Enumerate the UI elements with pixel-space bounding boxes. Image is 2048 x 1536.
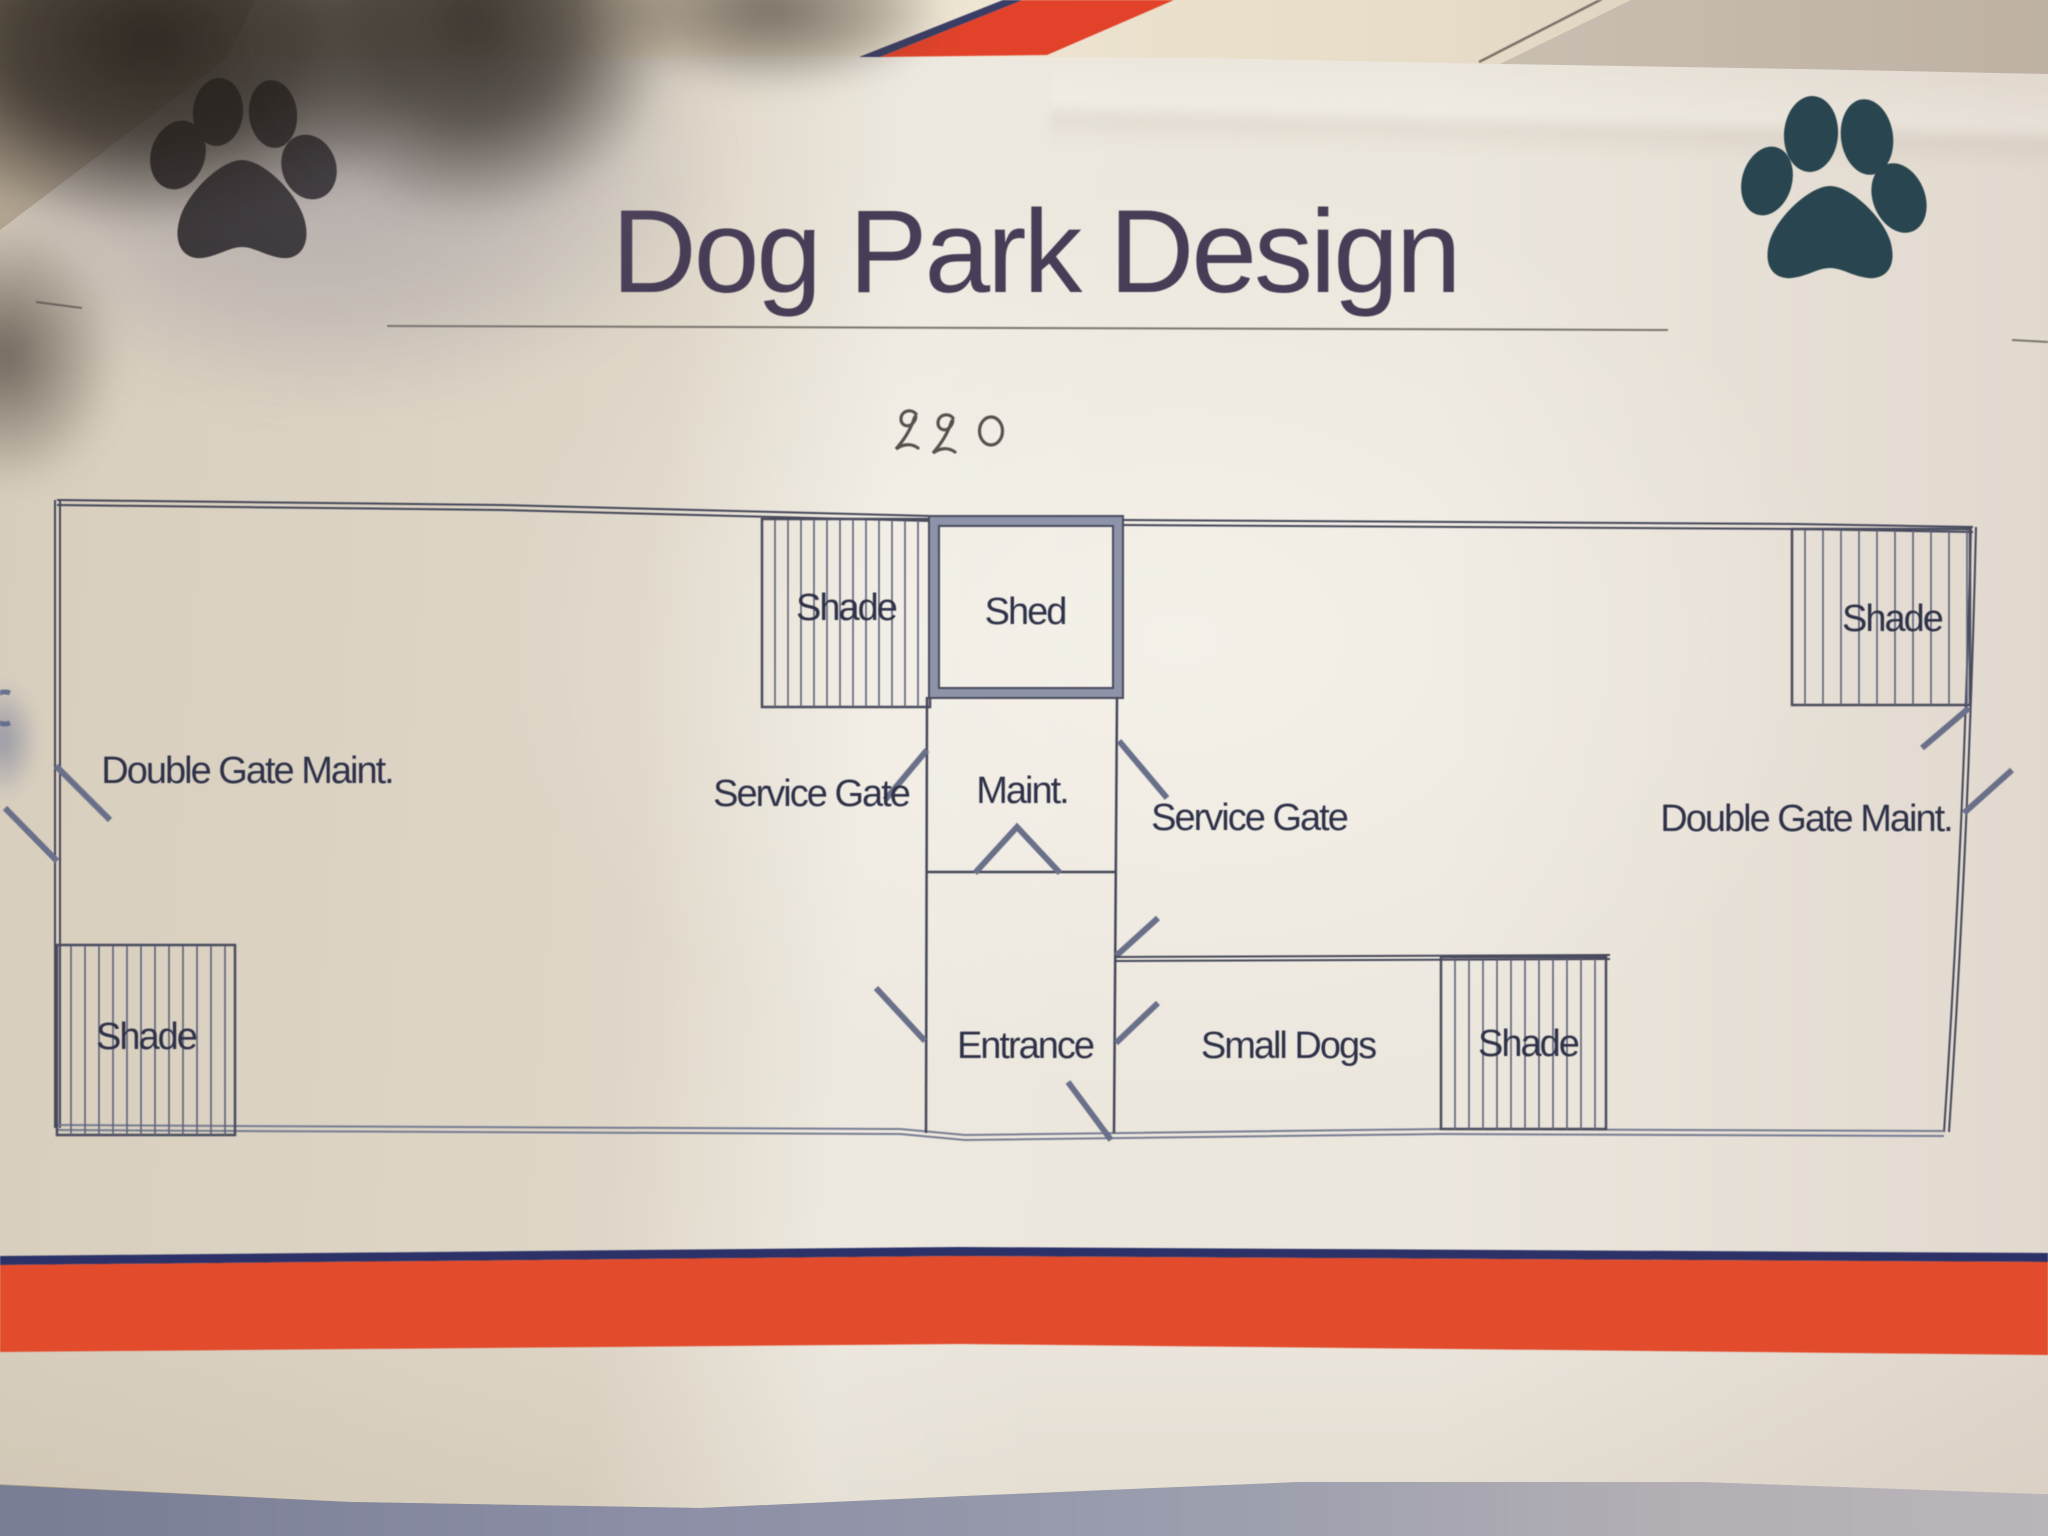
svg-text:Shade: Shade <box>96 1016 197 1058</box>
svg-text:Shade: Shade <box>1842 598 1943 640</box>
svg-text:Entrance: Entrance <box>957 1025 1094 1067</box>
svg-text:Shade: Shade <box>796 587 897 629</box>
svg-text:Shade: Shade <box>1478 1023 1579 1065</box>
svg-text:Service Gate: Service Gate <box>713 773 910 815</box>
svg-text:Shed: Shed <box>985 591 1066 633</box>
svg-text:Service Gate: Service Gate <box>1151 797 1348 839</box>
svg-text:Small Dogs: Small Dogs <box>1201 1025 1376 1067</box>
svg-text:Double Gate Maint.: Double Gate Maint. <box>101 750 392 792</box>
svg-text:Dog Park Design: Dog Park Design <box>612 186 1459 318</box>
svg-text:Maint.: Maint. <box>976 770 1067 812</box>
svg-text:Double Gate Maint.: Double Gate Maint. <box>1660 798 1951 840</box>
